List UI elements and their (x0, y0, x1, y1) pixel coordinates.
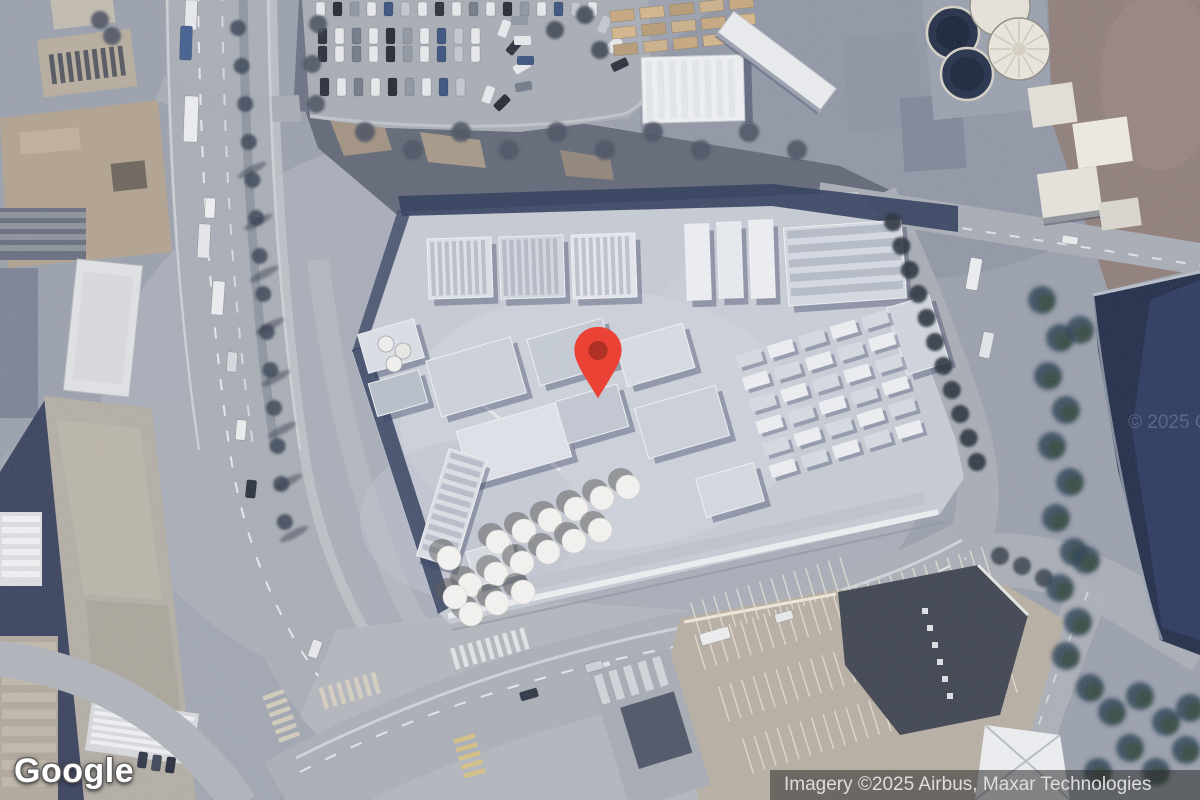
google-logo[interactable]: Google (14, 752, 134, 791)
map-pin-body (574, 327, 621, 398)
imagery-attribution: Imagery ©2025 Airbus, Maxar Technologies (770, 770, 1200, 800)
map-pin-hole (588, 341, 607, 360)
map-canvas[interactable]: Google © 2025 Go Imagery ©2025 Airbus, M… (0, 0, 1200, 800)
map-pin-icon[interactable] (571, 325, 625, 402)
